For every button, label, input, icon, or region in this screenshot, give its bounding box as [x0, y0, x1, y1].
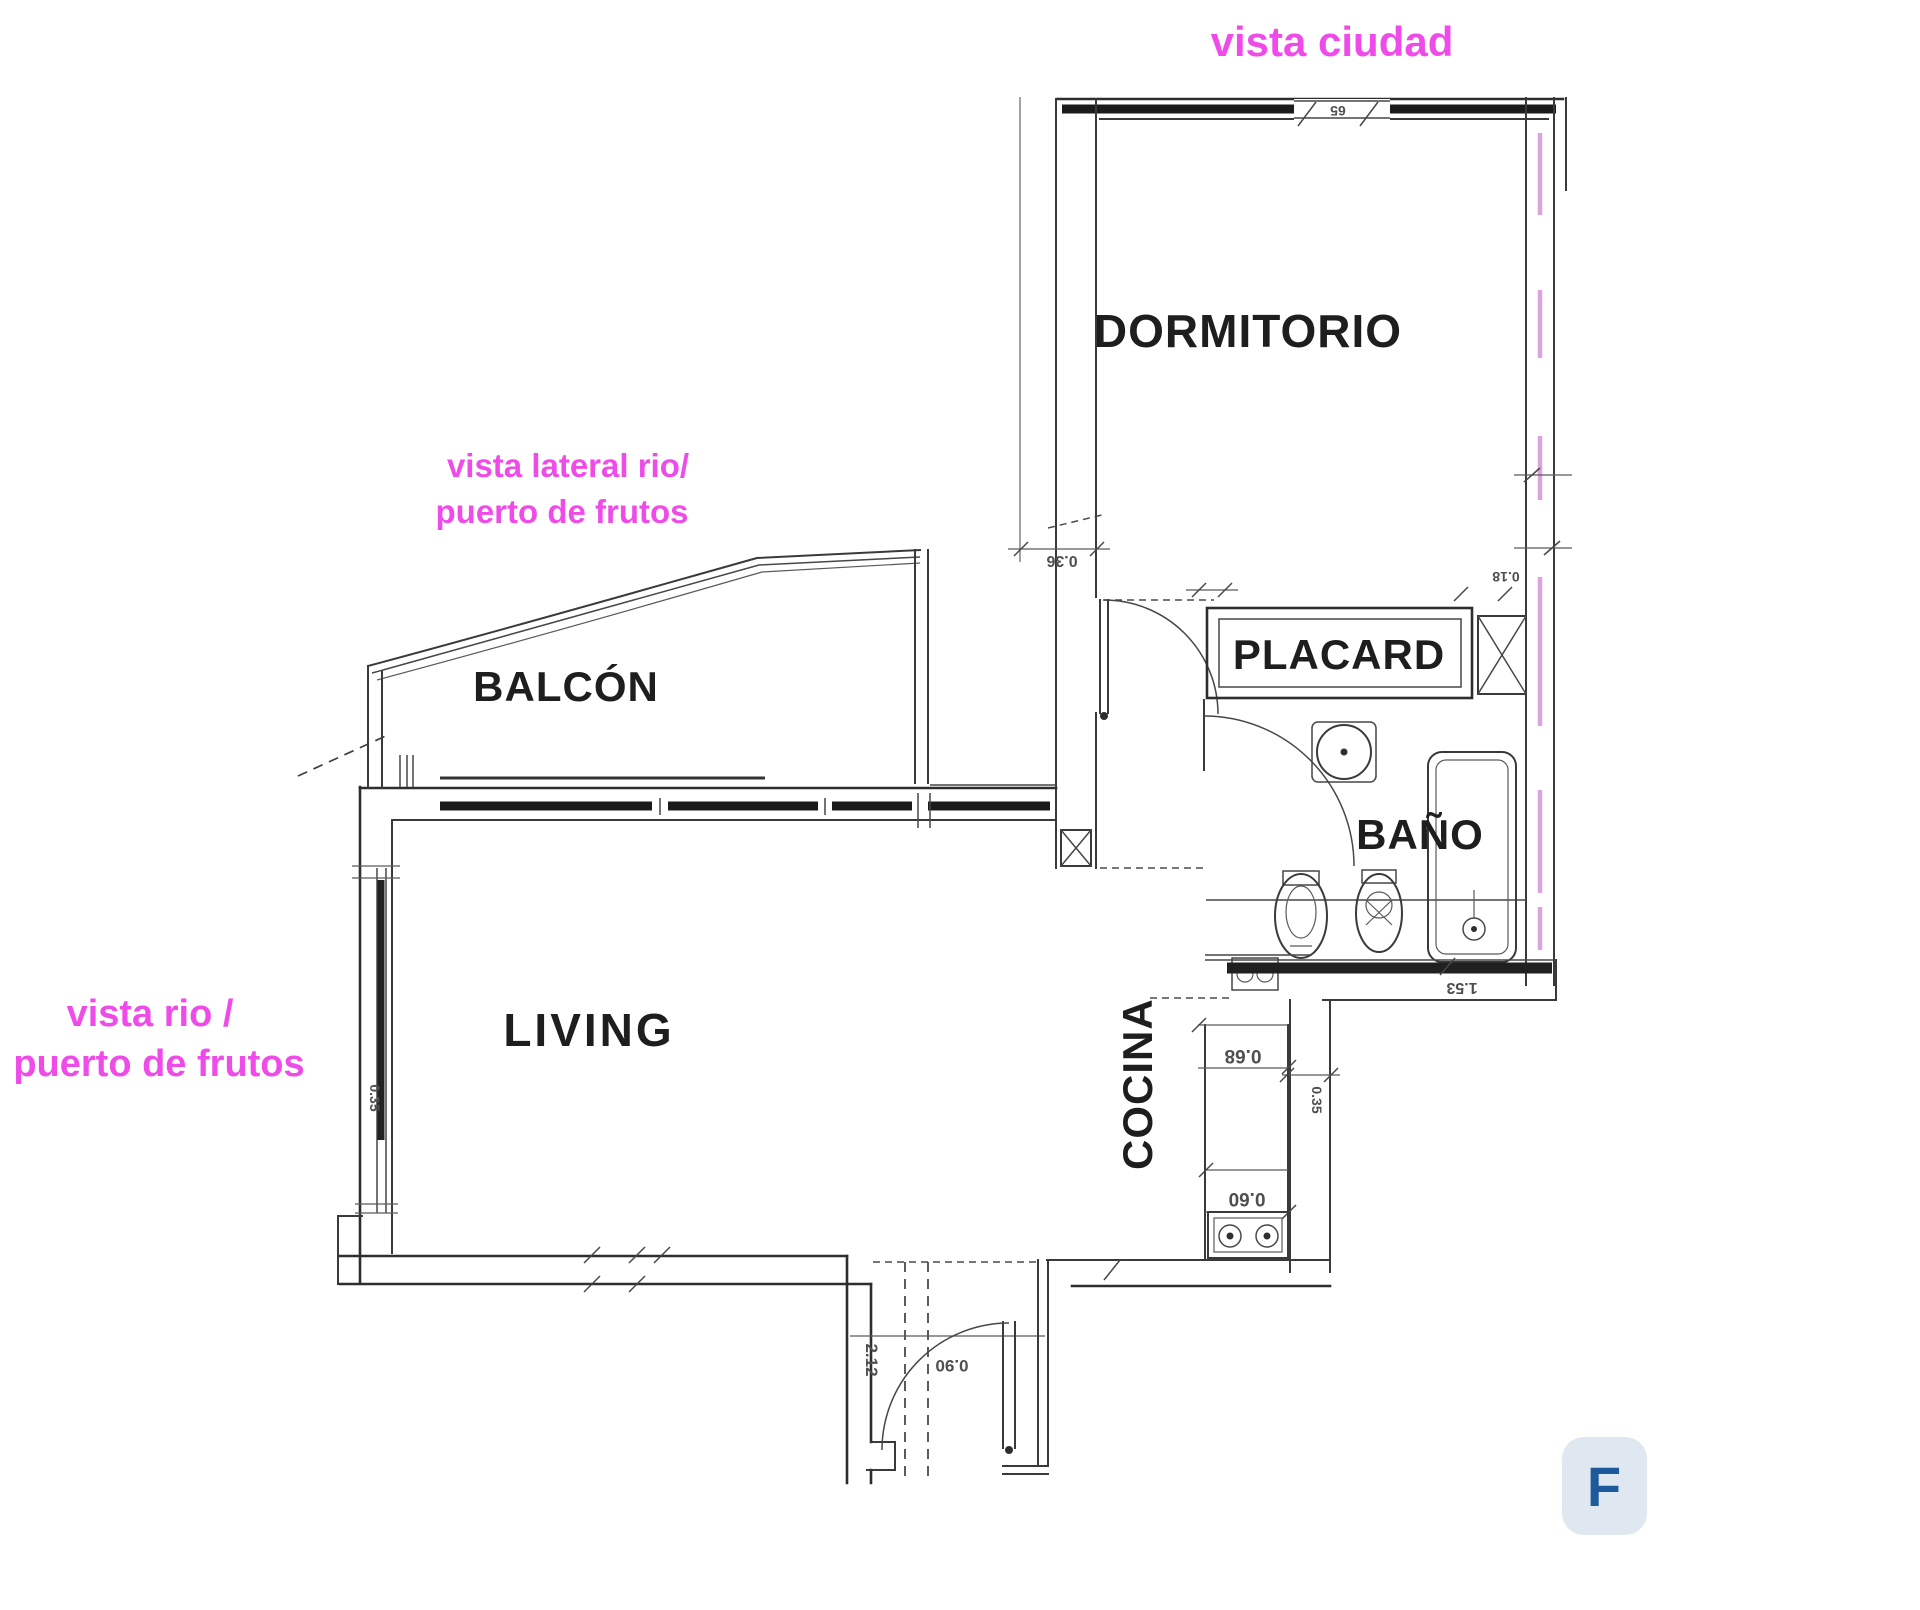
- room-label-bano: BAÑO: [1356, 811, 1484, 858]
- dimension-labels: 0.36 65 0.18 0.68 0.60 0.35 1.53 0.90 2.…: [367, 103, 1520, 1377]
- room-label-dormitorio: DORMITORIO: [1094, 305, 1402, 357]
- door-hinge: [1100, 712, 1108, 720]
- bathroom: [1150, 700, 1556, 1000]
- annotation-vista-lateral-line1: vista lateral rio/: [447, 447, 689, 484]
- dim-counter-width: 0.68: [1225, 1045, 1262, 1066]
- kitchen: [1047, 1000, 1340, 1286]
- floor-badge-letter: F: [1587, 1455, 1621, 1518]
- door-stop: [867, 1442, 895, 1470]
- dormitorio-door: [1100, 600, 1218, 720]
- room-label-cocina: COCINA: [1114, 998, 1161, 1170]
- annotation-vista-ciudad: vista ciudad: [1211, 18, 1454, 65]
- hall-walls: [930, 597, 1205, 868]
- dim-window-top: 65: [1330, 103, 1346, 119]
- dim-right-wall: 0.18: [1492, 569, 1519, 585]
- floor-plan-page: DORMITORIO PLACARD BAÑO COCINA LIVING BA…: [0, 0, 1920, 1610]
- room-label-living: LIVING: [503, 1004, 674, 1056]
- bidet: [1275, 871, 1327, 958]
- balcony-window-glazing: [440, 793, 1050, 828]
- dim-counter-depth: 0.60: [1229, 1188, 1266, 1209]
- annotation-vista-rio-line1: vista rio /: [67, 993, 234, 1035]
- annotation-vista-lateral-line2: puerto de frutos: [436, 493, 689, 530]
- dim-hall-wall: 0.36: [1046, 552, 1077, 569]
- floor-plan-drawing: DORMITORIO PLACARD BAÑO COCINA LIVING BA…: [0, 0, 1920, 1610]
- room-label-balcon: BALCÓN: [473, 662, 659, 710]
- dim-entry-door: 0.90: [935, 1356, 968, 1375]
- toilet: [1356, 870, 1402, 952]
- floor-badge: F: [1562, 1437, 1647, 1535]
- annotation-vista-rio-line2: puerto de frutos: [13, 1043, 304, 1085]
- dormitorio-walls: [1008, 97, 1572, 985]
- dim-bath-width: 1.53: [1446, 979, 1477, 996]
- dim-kitchen-side: 0.35: [1309, 1086, 1325, 1113]
- door-swing-arc: [1104, 600, 1218, 714]
- dim-living-window: 0.35: [367, 1084, 383, 1111]
- room-label-placard: PLACARD: [1233, 631, 1445, 678]
- stove: [1208, 1212, 1288, 1258]
- bath-door-arc: [1204, 716, 1354, 866]
- living-walls: [338, 778, 1056, 1292]
- balcony-leader-dash: [298, 734, 390, 776]
- dim-entry-side: 2.12: [862, 1343, 881, 1376]
- entrance-door: [882, 1322, 1015, 1454]
